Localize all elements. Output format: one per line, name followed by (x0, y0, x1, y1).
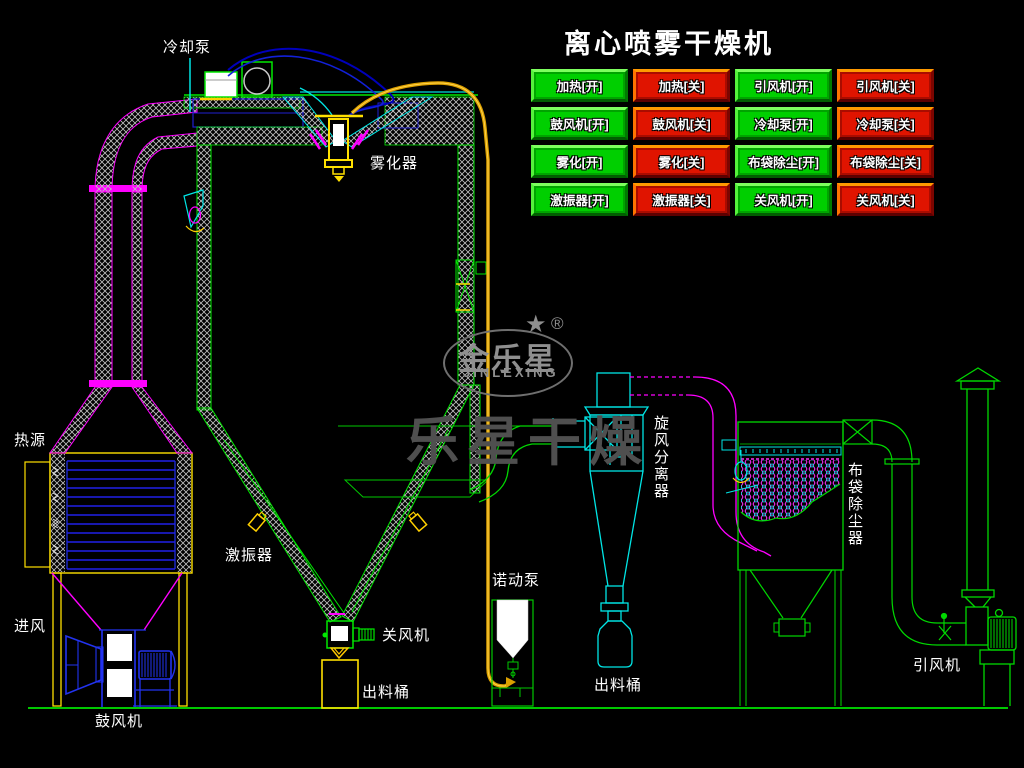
label-discharge-barrel-right: 出料桶 (594, 674, 642, 695)
control-button-panel: 加热[开] 加热[关] 引风机[开] 引风机[关] 鼓风机[开] 鼓风机[关] … (531, 69, 934, 216)
button-bag-filter-off[interactable]: 布袋除尘[关] (837, 145, 934, 178)
induced-draft-fan-unit (966, 607, 1016, 706)
button-atomize-off[interactable]: 雾化[关] (633, 145, 730, 178)
button-atomize-on[interactable]: 雾化[开] (531, 145, 628, 178)
label-air-inlet: 进风 (14, 615, 46, 636)
button-vibrator-on[interactable]: 激振器[开] (531, 183, 628, 216)
logo-registered-mark: ® (551, 314, 564, 334)
button-heat-off[interactable]: 加热[关] (633, 69, 730, 102)
label-bag-filter: 布袋除尘器 (846, 462, 863, 547)
label-feed-pump: 诺动泵 (492, 569, 540, 590)
feed-tank-unit (492, 600, 533, 706)
vibrator-right (407, 511, 426, 531)
button-vibrator-off[interactable]: 激振器[关] (633, 183, 730, 216)
button-draft-fan-on[interactable]: 引风机[开] (735, 69, 832, 102)
rotary-valve-unit (323, 621, 375, 658)
heater-unit (25, 453, 192, 706)
discharge-barrel-left (322, 660, 358, 708)
button-bag-filter-on[interactable]: 布袋除尘[开] (735, 145, 832, 178)
chimney (957, 368, 999, 607)
label-blower: 鼓风机 (95, 710, 143, 731)
hot-air-pipe (50, 99, 197, 453)
button-cooling-pump-off[interactable]: 冷却泵[关] (837, 107, 934, 140)
bag-filter-unit (722, 422, 843, 706)
label-heat-source: 热源 (14, 429, 46, 450)
button-cooling-pump-on[interactable]: 冷却泵[开] (735, 107, 832, 140)
button-blower-off[interactable]: 鼓风机[关] (633, 107, 730, 140)
hmi-screen: ★ ® 金乐星 JINLEXING 乐星干燥 离心喷雾干燥机 加热[开] 加热[… (0, 0, 1024, 768)
label-cyclone: 旋风分离器 (652, 415, 669, 500)
blower-unit (52, 573, 182, 707)
watermark-text: 乐星干燥 (406, 400, 650, 476)
brand-logo: ★ ® 金乐星 JINLEXING (441, 310, 581, 404)
label-induced-draft-fan: 引风机 (913, 654, 961, 675)
button-heat-on[interactable]: 加热[开] (531, 69, 628, 102)
label-discharge-barrel-left: 出料桶 (362, 681, 410, 702)
button-rotary-valve-off[interactable]: 关风机[关] (837, 183, 934, 216)
label-atomizer: 雾化器 (370, 152, 418, 173)
page-title: 离心喷雾干燥机 (564, 22, 774, 61)
logo-romanized-text: JINLEXING (463, 365, 559, 380)
button-blower-on[interactable]: 鼓风机[开] (531, 107, 628, 140)
cyclone-discharge-barrel (598, 621, 632, 667)
button-rotary-valve-on[interactable]: 关风机[开] (735, 183, 832, 216)
label-rotary-valve: 关风机 (382, 624, 430, 645)
button-draft-fan-off[interactable]: 引风机[关] (837, 69, 934, 102)
label-cooling-pump: 冷却泵 (163, 36, 211, 57)
label-vibrator: 激振器 (225, 544, 273, 565)
